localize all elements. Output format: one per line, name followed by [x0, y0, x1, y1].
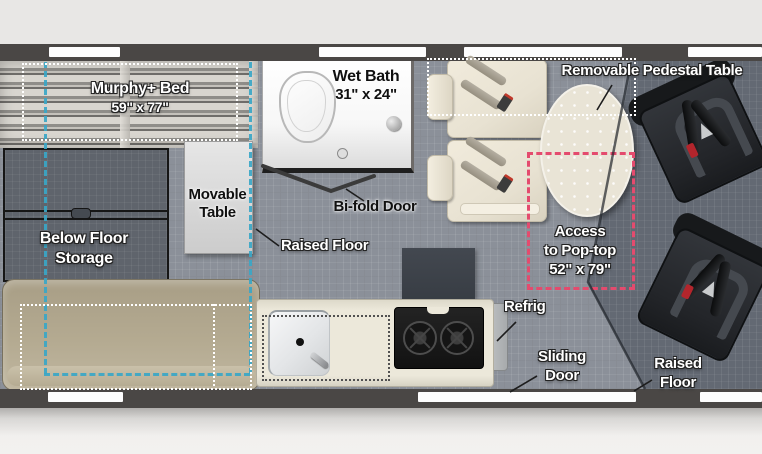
- top-wall: [0, 44, 762, 61]
- wardrobe-cabinet: [402, 248, 475, 299]
- counter-outline: [262, 315, 390, 381]
- sliding-door-label-line1: Sliding: [524, 347, 600, 366]
- raised-floor-front-label: Raised Floor: [641, 354, 715, 392]
- refrig-label: Refrig: [504, 298, 560, 316]
- raised-floor-front-line2: Floor: [641, 373, 715, 392]
- window-rear-bottom: [48, 392, 123, 402]
- shower-drain: [337, 148, 348, 159]
- sliding-door-opening: [418, 392, 636, 402]
- sofa-bed-outline: [20, 304, 252, 390]
- window-dinette-top: [464, 47, 622, 57]
- raised-floor-front-line1: Raised: [641, 354, 715, 373]
- headrest-front-seat: [427, 155, 453, 201]
- pedestal-table-label: Removable Pedestal Table: [548, 62, 756, 80]
- wet-bath-label: Wet Bath 31" x 24": [322, 68, 410, 104]
- sofa-bed-outline-divider: [213, 304, 215, 386]
- window-cab-top: [688, 47, 762, 57]
- sliding-door-label: Sliding Door: [524, 347, 600, 385]
- pop-top-access-label: Access to Pop-top 52" x 79": [528, 222, 632, 279]
- pop-top-label-line2: to Pop-top: [528, 241, 632, 260]
- movable-table-label: Movable Table: [184, 186, 251, 222]
- murphy-bed-label-line2: 59" x 77": [56, 98, 224, 116]
- pop-top-label-line1: Access: [528, 222, 632, 241]
- storage-handle: [71, 208, 91, 219]
- burner-left: [403, 321, 437, 355]
- below-floor-storage-label: Below Floor Storage: [6, 229, 162, 269]
- floor-plan: Murphy+ Bed 59" x 77" Wet Bath 31" x 24"…: [0, 0, 762, 454]
- sliding-door-label-line2: Door: [524, 366, 600, 385]
- bifold-door-label: Bi-fold Door: [325, 198, 425, 216]
- murphy-bed-label: Murphy+ Bed 59" x 77": [56, 80, 224, 116]
- stove-latch: [427, 307, 449, 314]
- raised-floor-mid-label: Raised Floor: [281, 237, 381, 255]
- window-cab-bottom: [700, 392, 762, 402]
- window-bath-top: [319, 47, 426, 57]
- murphy-bed-label-line1: Murphy+ Bed: [56, 80, 224, 98]
- wet-bath-label-line2: 31" x 24": [322, 86, 410, 104]
- window-rear-top: [49, 47, 120, 57]
- van-ground-shadow: [0, 404, 762, 436]
- storage-label-line1: Below Floor: [6, 229, 162, 249]
- wet-bath-label-line1: Wet Bath: [322, 68, 410, 86]
- movable-table-label-line2: Table: [184, 204, 251, 222]
- burner-right: [440, 321, 474, 355]
- bath-door-handle: [386, 116, 401, 131]
- movable-table-label-line1: Movable: [184, 186, 251, 204]
- storage-label-line2: Storage: [6, 249, 162, 269]
- two-burner-stove: [394, 307, 484, 369]
- pop-top-label-line3: 52" x 79": [528, 260, 632, 279]
- toilet-seat: [287, 80, 326, 132]
